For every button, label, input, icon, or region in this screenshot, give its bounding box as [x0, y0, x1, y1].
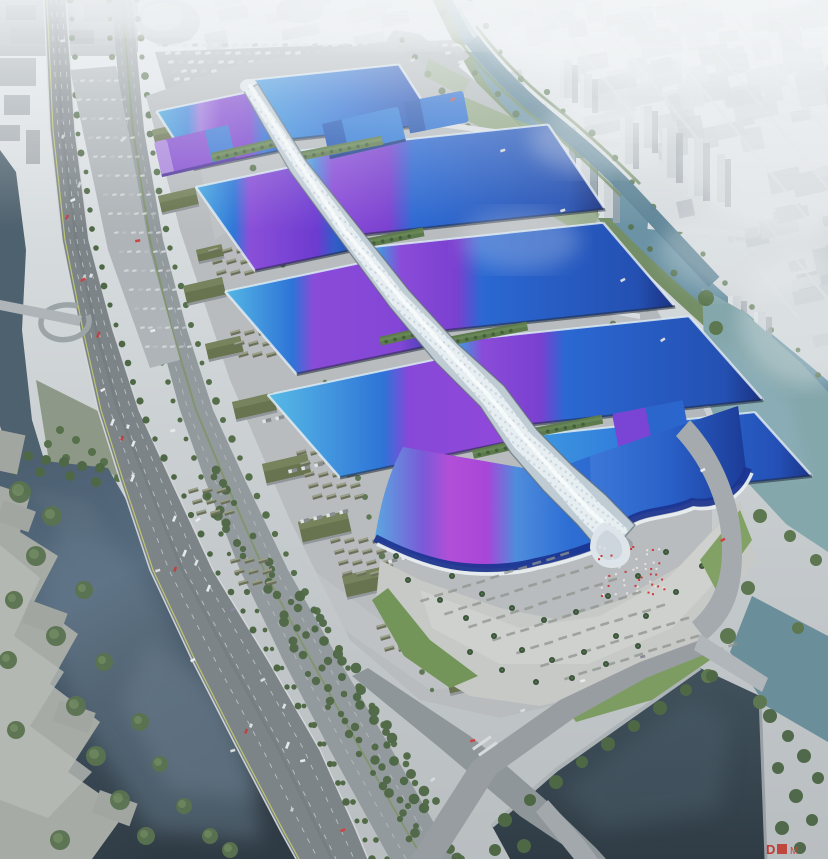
svg-text:M: M: [790, 846, 798, 857]
svg-text:D: D: [766, 842, 775, 857]
